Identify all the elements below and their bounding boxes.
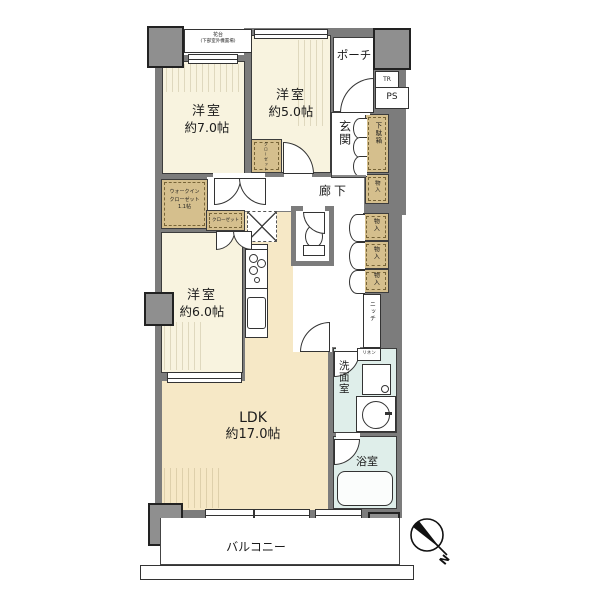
pillar-top-right <box>373 28 411 70</box>
closet-cell-label: 物入 <box>372 218 379 232</box>
closet-cell-entrance: 物入 <box>366 175 388 203</box>
entrance-step-line <box>332 175 366 177</box>
trunk-room-box: TR <box>375 71 399 88</box>
washing-machine-drain <box>381 385 389 393</box>
folding-door <box>353 118 367 139</box>
linen-label: リネン <box>358 351 380 356</box>
flower-stand-note: (下部室外機置場) <box>185 39 251 45</box>
washing-machine <box>362 364 391 395</box>
closet-cell-label: 物入 <box>372 246 379 260</box>
bathroom-label: 浴室 <box>350 455 384 468</box>
floorplan: 花台 (下部室外機置場) TR PS 下駄箱 物入 物入 物入 物入 ニッチ <box>0 0 600 600</box>
linen-box: リネン <box>357 348 381 361</box>
vanity-counter <box>356 396 396 432</box>
closet-cell-3: 物入 <box>364 270 388 292</box>
pillar-top-left <box>147 26 184 68</box>
bathtub <box>337 471 393 506</box>
window-western5-top <box>254 29 328 39</box>
closet-cell-label: 物入 <box>373 180 380 193</box>
hallway-label: 廊下 <box>312 184 356 199</box>
folding-door <box>353 137 367 158</box>
shoe-cabinet: 下駄箱 <box>366 115 388 172</box>
window-western7-top <box>188 54 238 64</box>
niche-box: ニッチ <box>363 294 381 348</box>
shoe-cabinet-label: 下駄箱 <box>373 122 381 145</box>
stove-burner <box>254 277 260 283</box>
toilet-tank <box>303 245 325 256</box>
vanity-faucet <box>385 412 392 415</box>
north-compass: N <box>406 514 456 566</box>
walk-in-closet-label: ウォークイン クローゼット 1.1帖 <box>162 189 207 212</box>
flower-stand-box: 花台 (下部室外機置場) <box>184 29 252 53</box>
folding-door <box>349 214 365 242</box>
north-label: N <box>437 552 453 566</box>
closet-cell-1: 物入 <box>364 214 388 240</box>
folding-door <box>349 270 365 294</box>
closet-western5-label: クローゼット <box>263 142 268 172</box>
stove-burner <box>249 266 258 275</box>
pipe-space-box: PS <box>375 87 409 109</box>
trunk-room-label: TR <box>376 76 398 83</box>
western7-label: 洋室 約7.0帖 <box>167 104 247 135</box>
washroom-label: 洗面室 <box>337 360 350 395</box>
balcony-label: バルコニー <box>206 540 306 555</box>
entrance-label: 玄関 <box>337 120 352 146</box>
balcony-plinth <box>140 565 414 580</box>
closet-cell-2: 物入 <box>364 242 388 268</box>
pipe-space-label: PS <box>376 92 408 103</box>
stove <box>245 249 268 289</box>
closet-western6-label: クローゼット <box>207 218 244 223</box>
closet-western5: クローゼット <box>252 140 281 172</box>
ldk-label: LDK 約17.0帖 <box>203 410 303 443</box>
folding-door <box>353 156 367 177</box>
closet-western6: クローゼット <box>207 211 244 230</box>
closet-cell-label: 物入 <box>372 272 379 286</box>
niche-label: ニッチ <box>368 301 375 322</box>
western5-label: 洋室 約5.0帖 <box>248 88 334 119</box>
sliding-door-western6 <box>167 372 242 383</box>
kitchen-sink <box>247 297 266 329</box>
vanity-basin <box>362 401 390 429</box>
walk-in-closet: ウォークイン クローゼット 1.1帖 <box>162 180 207 228</box>
toilet-door-gap <box>303 205 325 212</box>
western6-label: 洋室 約6.0帖 <box>162 288 242 319</box>
stove-burner <box>257 259 266 268</box>
folding-door <box>349 242 365 270</box>
porch-label: ポーチ <box>332 48 376 62</box>
